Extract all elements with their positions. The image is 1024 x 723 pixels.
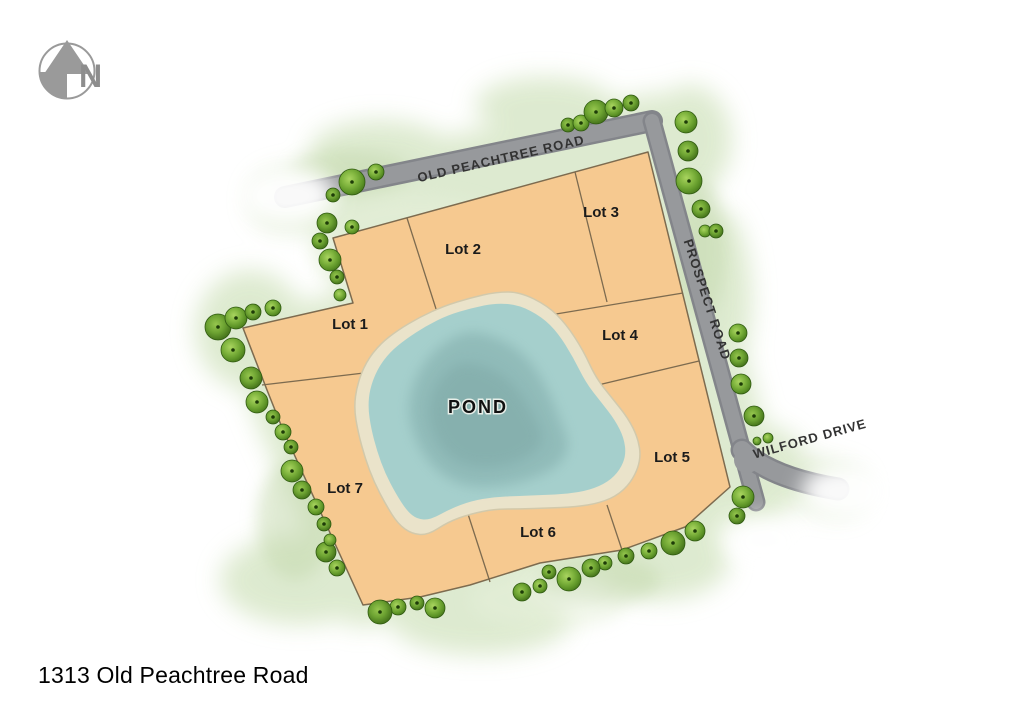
tree-trunk-dot xyxy=(396,605,400,609)
tree-icon xyxy=(308,499,324,515)
tree-trunk-dot xyxy=(251,310,255,314)
tree-trunk-dot xyxy=(603,561,607,565)
tree-trunk-dot xyxy=(374,170,378,174)
tree-trunk-dot xyxy=(647,549,651,553)
tree-icon xyxy=(513,583,531,601)
tree-icon xyxy=(368,600,392,624)
tree-trunk-dot xyxy=(281,430,285,434)
lot-7-label: Lot 7 xyxy=(327,480,363,497)
tree-icon xyxy=(266,410,280,424)
tree-trunk-dot xyxy=(735,514,739,518)
tree-trunk-dot xyxy=(686,149,690,153)
tree-icon xyxy=(533,579,547,593)
tree-icon xyxy=(293,481,311,499)
tree-trunk-dot xyxy=(520,590,524,594)
tree-trunk-dot xyxy=(714,229,718,233)
tree-trunk-dot xyxy=(300,488,304,492)
tree-trunk-dot xyxy=(249,376,253,380)
tree-icon xyxy=(319,249,341,271)
north-letter: N xyxy=(79,58,102,94)
tree-icon xyxy=(275,424,291,440)
tree-icon xyxy=(334,289,346,301)
tree-icon xyxy=(685,521,705,541)
tree-trunk-dot xyxy=(687,179,691,183)
tree-icon xyxy=(692,200,710,218)
tree-icon xyxy=(732,486,754,508)
tree-canopy xyxy=(334,289,346,301)
tree-icon xyxy=(221,338,245,362)
tree-icon xyxy=(410,596,424,610)
north-quadrant xyxy=(40,72,67,99)
tree-icon xyxy=(368,164,384,180)
lot-6-label: Lot 6 xyxy=(520,524,556,541)
tree-trunk-dot xyxy=(234,316,238,320)
tree-icon xyxy=(605,99,623,117)
site-plan-map: OLD PEACHTREE ROADPROSPECT ROADWILFORD D… xyxy=(0,0,1024,723)
tree-icon xyxy=(345,220,359,234)
tree-icon xyxy=(641,543,657,559)
lot-5-label: Lot 5 xyxy=(654,449,690,466)
tree-trunk-dot xyxy=(624,554,628,558)
tree-trunk-dot xyxy=(629,101,633,105)
tree-trunk-dot xyxy=(699,207,703,211)
tree-trunk-dot xyxy=(538,584,542,588)
lot-3-label: Lot 3 xyxy=(583,204,619,221)
tree-trunk-dot xyxy=(589,566,593,570)
tree-icon xyxy=(281,460,303,482)
tree-icon xyxy=(542,565,556,579)
tree-trunk-dot xyxy=(271,415,275,419)
tree-icon xyxy=(584,100,608,124)
tree-icon xyxy=(317,213,337,233)
tree-icon xyxy=(284,440,298,454)
tree-trunk-dot xyxy=(737,356,741,360)
tree-icon xyxy=(245,304,261,320)
tree-trunk-dot xyxy=(693,529,697,533)
tree-trunk-dot xyxy=(594,110,598,114)
tree-icon xyxy=(661,531,685,555)
tree-trunk-dot xyxy=(255,400,259,404)
tree-trunk-dot xyxy=(684,120,688,124)
tree-trunk-dot xyxy=(612,106,616,110)
lot-1-label: Lot 1 xyxy=(332,316,368,333)
tree-trunk-dot xyxy=(671,541,675,545)
tree-icon xyxy=(246,391,268,413)
tree-trunk-dot xyxy=(335,275,339,279)
tree-trunk-dot xyxy=(567,577,571,581)
watercolor-fade xyxy=(801,464,889,520)
lot-4-label: Lot 4 xyxy=(602,327,638,344)
tree-trunk-dot xyxy=(350,180,354,184)
tree-icon xyxy=(225,307,247,329)
tree-trunk-dot xyxy=(736,331,740,335)
site-plan-page: OLD PEACHTREE ROADPROSPECT ROADWILFORD D… xyxy=(0,0,1024,723)
tree-icon xyxy=(678,141,698,161)
tree-trunk-dot xyxy=(322,522,326,526)
tree-icon xyxy=(582,559,600,577)
tree-trunk-dot xyxy=(314,505,318,509)
tree-icon xyxy=(390,599,406,615)
tree-icon xyxy=(623,95,639,111)
tree-trunk-dot xyxy=(331,193,335,197)
tree-trunk-dot xyxy=(378,610,382,614)
tree-icon xyxy=(265,300,281,316)
tree-trunk-dot xyxy=(231,348,235,352)
tree-icon xyxy=(317,517,331,531)
tree-trunk-dot xyxy=(324,550,328,554)
tree-trunk-dot xyxy=(289,445,293,449)
tree-trunk-dot xyxy=(290,469,294,473)
tree-trunk-dot xyxy=(325,221,329,225)
tree-trunk-dot xyxy=(547,570,551,574)
tree-icon xyxy=(675,111,697,133)
tree-trunk-dot xyxy=(415,601,419,605)
tree-icon xyxy=(618,548,634,564)
tree-icon xyxy=(329,560,345,576)
tree-icon xyxy=(330,270,344,284)
tree-icon xyxy=(744,406,764,426)
tree-icon xyxy=(425,598,445,618)
tree-trunk-dot xyxy=(271,306,275,310)
tree-trunk-dot xyxy=(579,121,583,125)
tree-trunk-dot xyxy=(752,414,756,418)
tree-icon xyxy=(312,233,328,249)
address-caption: 1313 Old Peachtree Road xyxy=(38,662,309,689)
tree-icon xyxy=(240,367,262,389)
tree-icon xyxy=(339,169,365,195)
lot-2-label: Lot 2 xyxy=(445,241,481,258)
tree-trunk-dot xyxy=(335,566,339,570)
tree-trunk-dot xyxy=(566,123,570,127)
tree-trunk-dot xyxy=(328,258,332,262)
pond-label: POND xyxy=(448,397,508,417)
tree-trunk-dot xyxy=(741,495,745,499)
tree-icon xyxy=(729,508,745,524)
tree-icon xyxy=(709,224,723,238)
tree-trunk-dot xyxy=(216,325,220,329)
tree-trunk-dot xyxy=(350,225,354,229)
tree-icon xyxy=(676,168,702,194)
tree-trunk-dot xyxy=(318,239,322,243)
tree-trunk-dot xyxy=(739,382,743,386)
north-arrow-icon: N xyxy=(40,40,103,99)
tree-icon xyxy=(731,374,751,394)
tree-trunk-dot xyxy=(433,606,437,610)
tree-icon xyxy=(729,324,747,342)
tree-icon xyxy=(324,534,336,546)
tree-icon xyxy=(557,567,581,591)
tree-canopy xyxy=(324,534,336,546)
tree-icon xyxy=(326,188,340,202)
